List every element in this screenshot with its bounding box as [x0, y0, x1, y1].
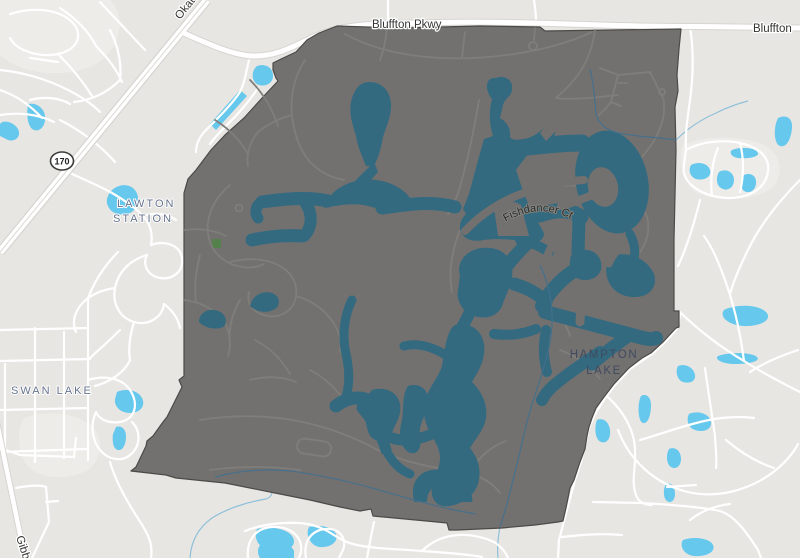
svg-text:Bluffton: Bluffton: [753, 23, 792, 35]
svg-text:STATION: STATION: [113, 213, 173, 225]
svg-text:HAMPTON: HAMPTON: [570, 349, 639, 361]
svg-text:SWAN LAKE: SWAN LAKE: [11, 385, 93, 397]
svg-text:170: 170: [54, 157, 69, 167]
svg-text:LAWTON: LAWTON: [117, 198, 175, 210]
svg-text:LAKE: LAKE: [586, 365, 622, 377]
svg-text:Bluffton Pkwy: Bluffton Pkwy: [372, 19, 442, 31]
